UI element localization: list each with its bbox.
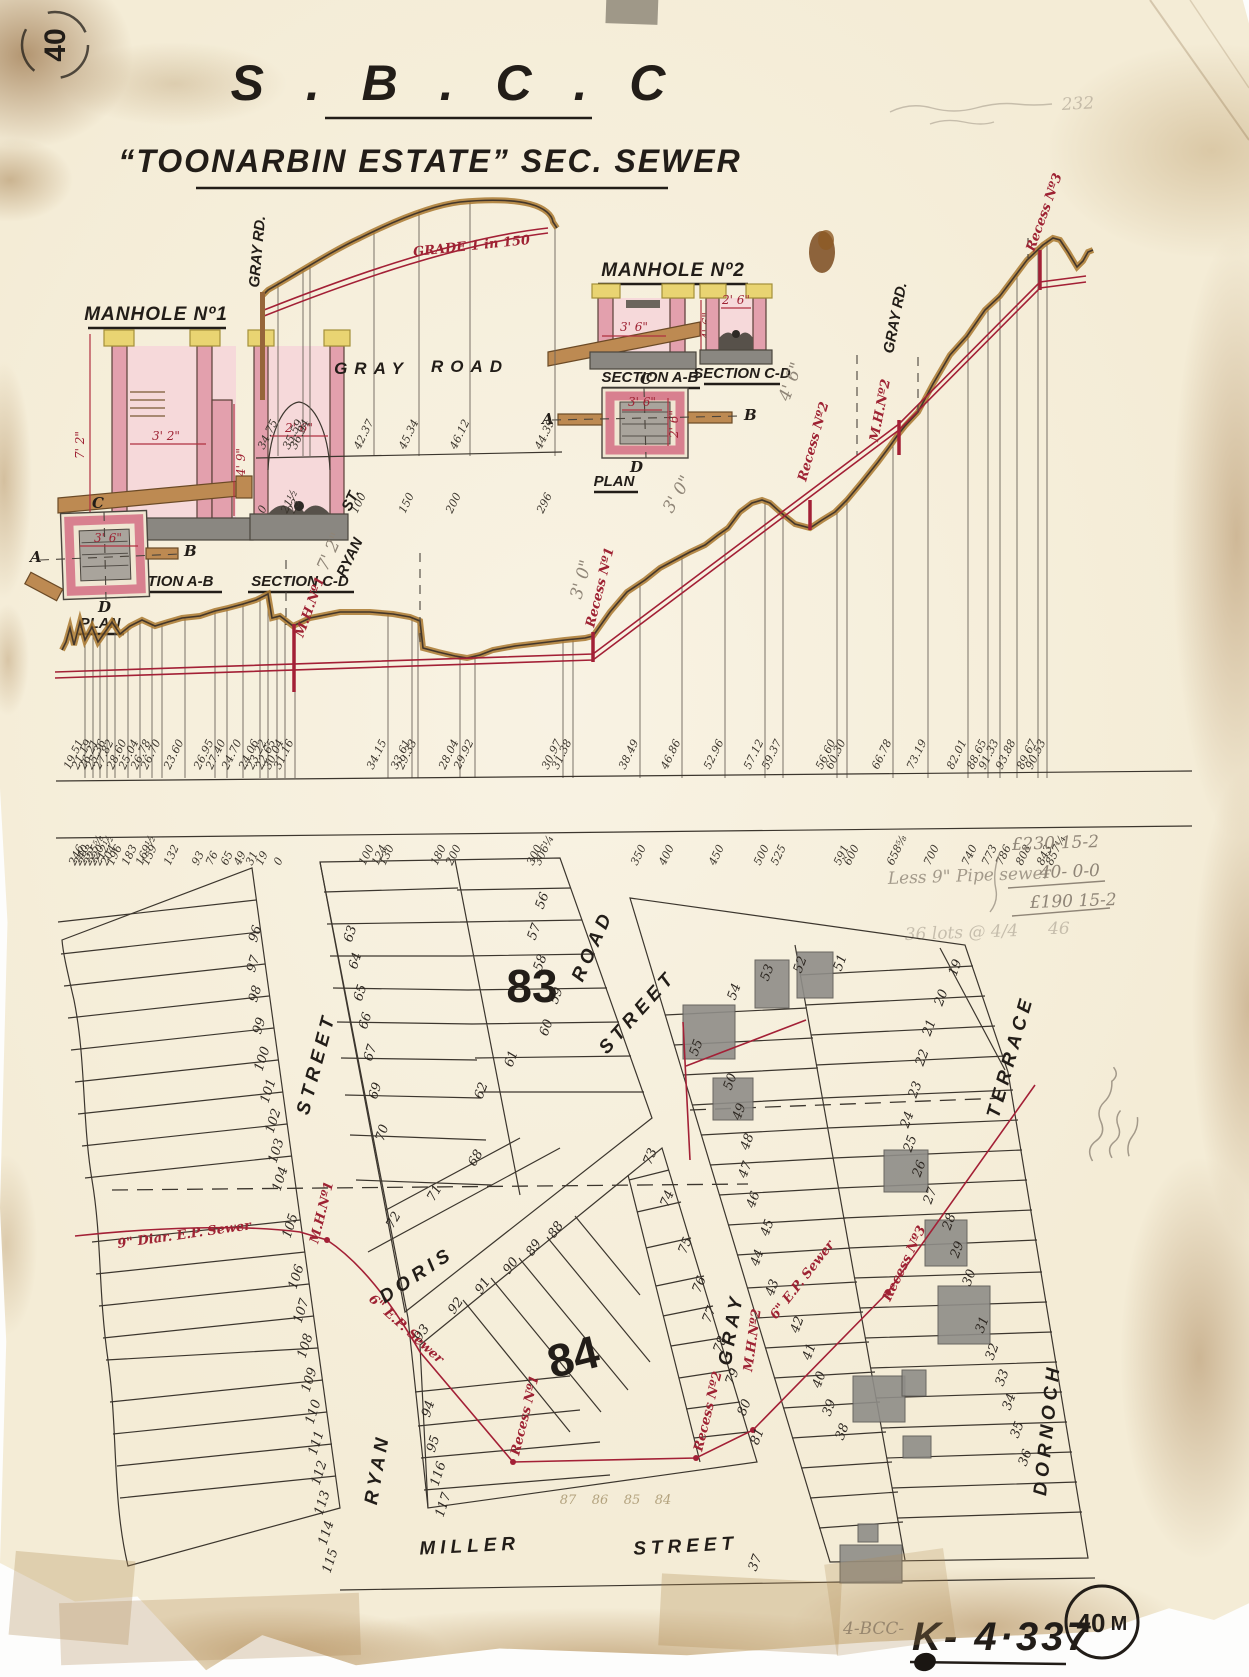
chainage-value: 500	[751, 843, 772, 868]
plan-buildings	[683, 952, 990, 1583]
mh2-plan-dim-w: 3' 6"	[628, 395, 656, 409]
lot-number: 108	[295, 1332, 317, 1360]
lot-number: 101	[258, 1077, 280, 1105]
lot-number: 66	[356, 1011, 375, 1031]
chainage-value: 132	[161, 843, 182, 868]
street-name-label: STREET	[633, 1533, 739, 1559]
lot-number: 39	[820, 1397, 840, 1418]
lot-number: 92	[445, 1295, 467, 1317]
structure-label: Recess Nº2	[795, 400, 832, 484]
chainage-value: 296	[534, 491, 555, 516]
level-value: 46.86	[658, 737, 684, 772]
structure-label: M.H.Nº2	[867, 378, 894, 444]
lot-number: 19	[946, 957, 966, 978]
chainage-value: 150	[396, 491, 417, 516]
lot-number: 117	[433, 1490, 455, 1519]
sewer-label: 6" E.P. Sewer	[767, 1237, 838, 1322]
lot-number: 71	[424, 1182, 445, 1204]
manhole-1-title: MANHOLE Nº1	[84, 304, 228, 325]
cost-less-value: 40- 0-0	[1038, 861, 1100, 883]
building-footprint	[840, 1545, 902, 1583]
section-number-84: 84	[542, 1325, 605, 1388]
street-name-label: ROAD	[568, 907, 618, 985]
lot-number: 110	[303, 1398, 325, 1426]
street-name-label: DORNOCH	[1030, 1362, 1065, 1497]
chainage-value: 200	[443, 491, 464, 516]
building-footprint	[903, 1436, 931, 1458]
mh1-dim-height: 7' 2"	[73, 431, 87, 459]
plan-faint-lot-numbers: 87868584	[560, 1493, 672, 1508]
chainage-value: 525	[768, 843, 789, 868]
mh1-plan-dim: 3' 6"	[94, 531, 122, 545]
level-value: 46.12	[447, 417, 473, 452]
lot-number: 98	[246, 984, 265, 1004]
gray-road-levels: 34.7535.5936.9442.3745.3446.1244.39	[255, 417, 557, 452]
lot-number: 73	[641, 1146, 661, 1167]
sewer-label: 9" Diar. E.P. Sewer	[116, 1218, 253, 1252]
lot-number: 51	[831, 952, 851, 973]
organisation-title: S . B . C . C	[231, 55, 680, 111]
mh2-dim-cd-width: 2' 6"	[721, 293, 750, 307]
drawing-title: “TOONARBIN ESTATE” SEC. SEWER	[118, 143, 741, 179]
lot-number: 88	[545, 1219, 567, 1241]
lot-number: 107	[291, 1296, 313, 1325]
level-value: 42.37	[351, 417, 377, 452]
road-name-road: ROAD	[431, 357, 509, 376]
lot-number: 45	[757, 1217, 777, 1239]
lot-number: 40	[809, 1369, 829, 1391]
faint-lot-number: 85	[624, 1493, 641, 1508]
lot-number: 106	[286, 1263, 308, 1291]
mh1-plan-letter-c: C	[92, 494, 104, 512]
chainage-value: 450	[706, 843, 727, 868]
sewer-label: M.H.Nº1	[307, 1180, 337, 1246]
level-value: 44.39	[532, 417, 558, 452]
lot-number: 67	[361, 1042, 381, 1063]
chainage-value: 0	[271, 855, 286, 867]
lot-number: 114	[316, 1519, 338, 1547]
street-name-label: STREET	[595, 966, 681, 1058]
lot-number: 116	[428, 1460, 450, 1488]
lot-number: 62	[472, 1080, 492, 1101]
lot-number: 22	[912, 1047, 932, 1069]
level-value: 38.49	[616, 737, 641, 771]
mh1-plan-letter-b: B	[183, 542, 197, 560]
cost-less-label: Less 9" Pipe sewer	[886, 863, 1051, 889]
lot-number: 76	[690, 1274, 710, 1295]
level-value: 52.96	[701, 737, 726, 771]
lot-number: 77	[700, 1304, 720, 1326]
lot-number: 38	[833, 1421, 853, 1442]
chainage-value: 200	[443, 843, 464, 868]
lot-number: 99	[250, 1016, 269, 1036]
lot-number: 37	[746, 1552, 766, 1573]
sewer-label: Recess Nº1	[508, 1374, 543, 1458]
chainage-value: 740	[959, 843, 980, 868]
lot-number: 75	[676, 1235, 696, 1256]
lot-number: 54	[725, 981, 745, 1002]
profile-gray-rd-label: GRAY RD.	[880, 281, 910, 355]
sewer-label: Recess Nº3	[880, 1224, 930, 1305]
lots-note: 36 lots @ 4/4	[904, 921, 1018, 945]
level-value: 23.60	[161, 737, 187, 772]
chainage-value: 658⅝	[884, 833, 910, 867]
engineer-signature	[1086, 1067, 1150, 1170]
lot-number: 64	[346, 951, 365, 971]
lot-number: 56	[533, 890, 553, 911]
grade-label: GRADE 1 in 150	[413, 233, 531, 260]
lot-number: 35	[1008, 1419, 1028, 1440]
level-value: 45.34	[396, 417, 422, 452]
lot-number: 24	[897, 1109, 917, 1131]
street-name-label: DORIS	[376, 1243, 458, 1308]
corner-stamp: 40	[22, 12, 88, 78]
mh1-plan-letter-a: A	[28, 548, 42, 566]
profile-pencil-dims: 7' 2"3' 0"3' 0"4' 6"	[313, 360, 807, 602]
lot-number: 65	[351, 983, 370, 1003]
faint-lot-number: 86	[592, 1493, 609, 1508]
lot-number: 20	[931, 987, 951, 1009]
street-name-label: MILLER	[419, 1533, 521, 1559]
pencil-note-number: 232	[1060, 93, 1094, 115]
mh2-plan-label: PLAN	[594, 473, 636, 490]
gray-rd-end-label: GRAY RD.	[246, 215, 269, 288]
mh2-section-cd-label: SECTION C-D	[693, 365, 791, 382]
lot-number: 109	[299, 1366, 321, 1394]
lot-number: 61	[502, 1048, 522, 1069]
level-value: 34.15	[364, 737, 389, 771]
lot-number: 69	[366, 1081, 385, 1101]
faint-lot-number: 87	[560, 1493, 577, 1508]
chainage-value: 700	[921, 843, 942, 868]
top-pencil-note: 232	[890, 93, 1095, 124]
mh2-plan-letter-c: C	[640, 370, 652, 388]
lot-number: 79	[723, 1366, 743, 1387]
lot-number: 33	[993, 1367, 1013, 1388]
building-footprint	[902, 1370, 926, 1396]
pencil-dimension: 3' 0"	[659, 472, 696, 516]
sheet-title: S . B . C . C “TOONARBIN ESTATE” SEC. SE…	[118, 55, 741, 188]
mh1-plan-letter-d: D	[97, 598, 111, 616]
plan-sewer-labels: 9" Diar. E.P. SewerM.H.Nº16" E.P. SewerR…	[116, 1180, 929, 1458]
lot-number: 43	[762, 1277, 782, 1299]
lot-number: 112	[309, 1459, 331, 1487]
lot-number: 60	[537, 1017, 557, 1038]
lot-number: 89	[523, 1237, 545, 1259]
mh2-plan-dim-h: 2' 6"	[667, 410, 681, 439]
profile-levels: 19.5121.1926.2125.3627.8228.6025.0426.78…	[61, 737, 1048, 772]
building-footprint	[938, 1286, 990, 1344]
lot-number: 63	[341, 924, 360, 944]
lot-number: 111	[306, 1429, 328, 1457]
ref-prefix: 4-BCC-	[842, 1619, 904, 1639]
sewer-label: Recess Nº2	[691, 1370, 726, 1454]
mh1-dim-width: 3' 2"	[152, 429, 180, 443]
lot-number: 97	[244, 953, 264, 974]
lot-number: 34	[1000, 1391, 1020, 1412]
lot-number: 105	[280, 1212, 302, 1240]
lot-number: 80	[735, 1397, 755, 1418]
lot-number: 95	[424, 1434, 443, 1454]
building-footprint	[853, 1376, 905, 1422]
lot-number: 32	[983, 1341, 1003, 1362]
chainage-value: 350	[628, 843, 649, 868]
street-name-label: STREET	[293, 1010, 340, 1117]
lot-number: 48	[737, 1131, 757, 1153]
circle-stamp-letter: M	[1111, 1613, 1128, 1635]
mh1-section-cd-label: SECTION C-D	[251, 573, 349, 590]
building-footprint	[858, 1524, 878, 1542]
lot-number: 42	[787, 1314, 807, 1336]
lot-number: 115	[320, 1547, 342, 1575]
top-tape	[605, 0, 658, 25]
reference-marks: 4-BCC- K- 4·337 40 M	[842, 1586, 1138, 1674]
lot-number: 44	[747, 1247, 767, 1269]
circle-stamp-number: 40	[1077, 1608, 1106, 1638]
mh1-dim-depth: 4' 9"	[234, 448, 248, 477]
lot-number: 21	[919, 1017, 939, 1039]
manhole-2-title: MANHOLE Nº2	[601, 260, 745, 281]
lot-number: 94	[419, 1399, 438, 1419]
profile-chainages: 246240233225⅝220212½204196183169½1591329…	[66, 833, 1069, 868]
chainage-value: 76	[203, 849, 221, 867]
mh2-plan-letter-b: B	[743, 406, 757, 424]
faint-lot-number: 84	[655, 1493, 672, 1508]
sewer-drawing: 40 232 S . B . C . C “TOONARBIN ESTATE” …	[0, 0, 1249, 1677]
road-name-gray: GRAY	[334, 359, 410, 378]
lot-number: 70	[373, 1123, 392, 1143]
lot-number: 100	[252, 1045, 274, 1073]
manhole-2-details: MANHOLE Nº2 3' 6" 4' 6" SECTION A-B	[540, 260, 791, 492]
lot-number: 30	[960, 1267, 980, 1288]
lot-number: 113	[312, 1489, 334, 1517]
drawing-sheet: 40 232 S . B . C . C “TOONARBIN ESTATE” …	[0, 0, 1249, 1677]
street-name-label: RYAN	[361, 1432, 394, 1507]
lot-number: 103	[266, 1137, 288, 1165]
cost-net: £190 15-2	[1028, 890, 1117, 913]
street-plan: 83 84 STREETRYANDORISROADSTREETGRAYMILLE…	[58, 858, 1150, 1590]
cost-total: £230-15-2	[1010, 832, 1099, 855]
corner-stamp-number: 40	[39, 28, 72, 61]
sewer-label: M.H.Nº2	[741, 1308, 765, 1374]
level-value: 73.19	[904, 737, 929, 771]
sewer-label: 6" E.P. Sewer	[365, 1292, 447, 1368]
lot-number: 102	[263, 1107, 285, 1135]
level-value: 66.78	[869, 737, 894, 771]
mh2-dim-width: 3' 6"	[620, 320, 648, 334]
lot-number: 23	[905, 1079, 925, 1101]
lot-number: 57	[525, 921, 545, 942]
chainage-value: 400	[656, 843, 677, 868]
lots-value: 46	[1047, 919, 1070, 939]
